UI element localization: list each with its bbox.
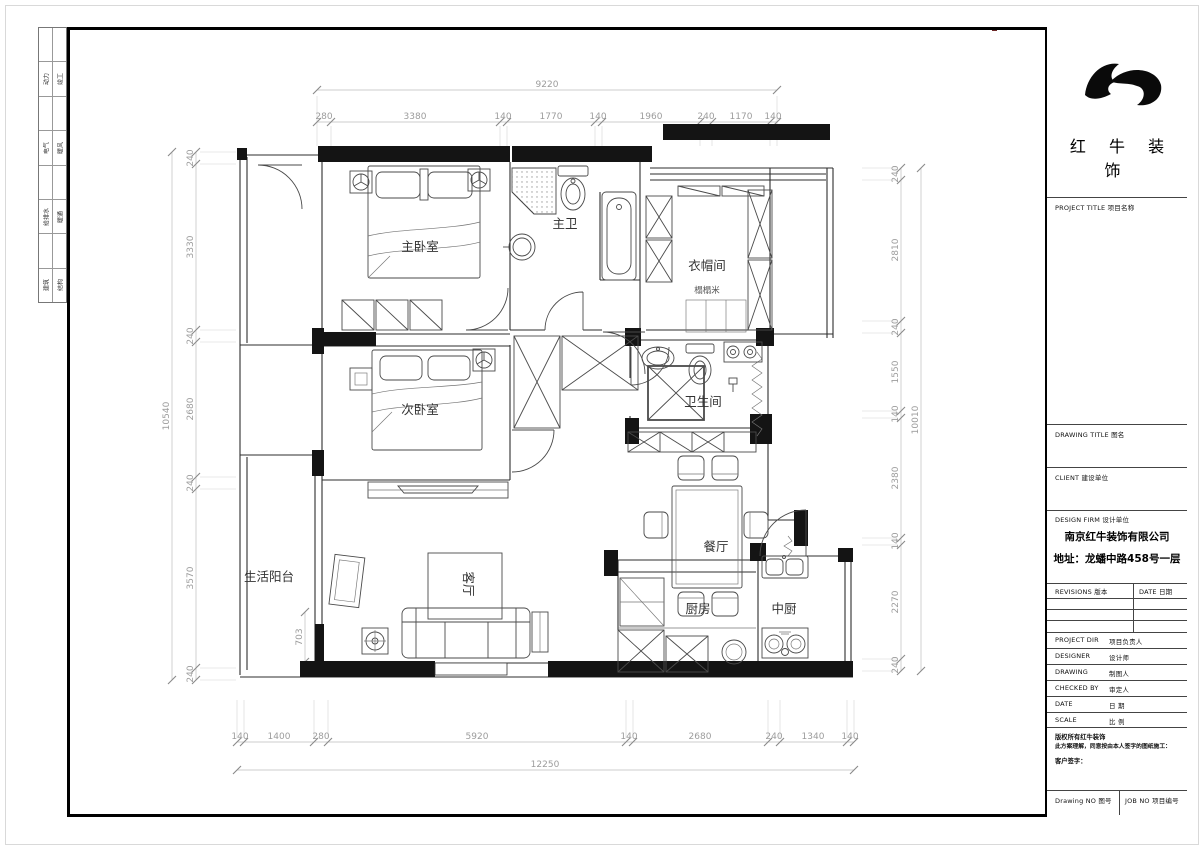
copyright-line2: 此方案理解，同意按由本人签字的图纸施工：: [1055, 741, 1171, 750]
dining-furniture: [644, 456, 768, 616]
client-label: CLIENT 建设单位: [1055, 472, 1108, 482]
room-label-bathroom: 卫生间: [684, 394, 722, 409]
room-label-cloakroom: 衣帽间: [688, 258, 726, 273]
drawing-sheet: 动力 竣工 电气 暖风 给排水 暖通 建筑 结构 红 牛 装 饰 PROJECT…: [0, 0, 1200, 848]
sign-label: 竣工: [55, 73, 64, 85]
title-block: 红 牛 装 饰 PROJECT TITLE 项目名称 DRAWING TITLE…: [1045, 27, 1187, 817]
dim-right-total: 10010: [911, 405, 921, 434]
sign-label: 动力: [41, 73, 50, 85]
svg-text:3570: 3570: [186, 566, 196, 589]
svg-text:2680: 2680: [186, 397, 196, 420]
sign-label: 建筑: [41, 279, 50, 291]
client-sign-label: 客户签字：: [1055, 756, 1086, 765]
dimension-left: 10540 240 3330 240 2680 240 3570 240: [162, 148, 236, 684]
svg-text:1960: 1960: [640, 112, 663, 122]
scale-label: SCALE: [1055, 716, 1077, 724]
svg-text:3380: 3380: [404, 112, 427, 122]
firm-address: 地址：龙蟠中路458号一层: [1047, 551, 1187, 566]
svg-text:240: 240: [186, 665, 196, 682]
sign-row-empty: [39, 28, 66, 62]
project-dir-label: PROJECT DIR: [1055, 636, 1099, 644]
dim-left-total: 10540: [162, 401, 172, 430]
dimension-right: 240 2810 240 1550 140 2380 140 2270 240 …: [862, 164, 925, 675]
svg-text:240: 240: [186, 149, 196, 166]
dimension-bottom: 140 1400 280 5920 140 2680 240 1340 140 …: [231, 608, 858, 774]
svg-text:2380: 2380: [891, 466, 901, 489]
revisions-label: REVISIONS 版本: [1055, 586, 1108, 596]
svg-text:140: 140: [891, 532, 901, 549]
sign-row-empty: [39, 97, 66, 131]
revisions-date-label: DATE 日期: [1139, 586, 1172, 596]
svg-text:2270: 2270: [891, 590, 901, 613]
svg-text:5920: 5920: [466, 732, 489, 742]
firm-name: 南京红牛装饰有限公司: [1047, 529, 1187, 544]
sign-row: 给排水 暖通: [39, 200, 66, 234]
entry-threshold: [435, 663, 507, 675]
signature-strip: 动力 竣工 电气 暖风 给排水 暖通 建筑 结构: [38, 27, 67, 303]
svg-text:1170: 1170: [730, 112, 753, 122]
room-label-tatami: 榻榻米: [694, 285, 720, 296]
svg-text:1340: 1340: [802, 732, 825, 742]
room-label-balcony: 生活阳台: [244, 569, 294, 584]
checked-by-label: CHECKED BY: [1055, 684, 1099, 692]
sign-label: 暖通: [55, 211, 64, 223]
svg-text:140: 140: [841, 732, 858, 742]
svg-text:240: 240: [697, 112, 714, 122]
frame-marker: [992, 30, 997, 31]
design-firm-label: DESIGN FIRM 设计单位: [1055, 514, 1129, 524]
svg-text:240: 240: [186, 474, 196, 491]
svg-text:280: 280: [312, 732, 329, 742]
second-bedroom-furniture: [350, 350, 508, 498]
floor-plan: 9220 280 3380 140 1770 140 1960 240 1170…: [70, 30, 1045, 820]
sign-label: 暖风: [55, 142, 64, 154]
room-label-living: 客厅: [461, 571, 476, 596]
sign-label: 给排水: [41, 208, 50, 226]
sign-row: 动力 竣工: [39, 62, 66, 96]
svg-text:240: 240: [891, 165, 901, 182]
room-label-kitchen: 厨房: [685, 601, 710, 616]
designer-label: DESIGNER: [1055, 652, 1090, 660]
svg-text:2810: 2810: [891, 238, 901, 261]
sign-label: 结构: [55, 279, 64, 291]
room-label-master-bedroom: 主卧室: [401, 239, 439, 254]
svg-text:240: 240: [186, 327, 196, 344]
sign-row: 建筑 结构: [39, 269, 66, 302]
svg-text:240: 240: [765, 732, 782, 742]
svg-text:240: 240: [891, 656, 901, 673]
svg-text:1400: 1400: [268, 732, 291, 742]
dim-bottom-total: 12250: [531, 760, 560, 770]
sign-label: 电气: [41, 142, 50, 154]
svg-text:280: 280: [315, 112, 332, 122]
svg-text:2680: 2680: [689, 732, 712, 742]
company-name: 红 牛 装 饰: [1047, 133, 1187, 181]
room-label-master-bath: 主卫: [552, 216, 577, 231]
svg-text:140: 140: [231, 732, 248, 742]
svg-text:3330: 3330: [186, 235, 196, 258]
living-room-furniture: [329, 553, 548, 658]
svg-text:1550: 1550: [891, 360, 901, 383]
sign-row-empty: [39, 234, 66, 268]
room-label-second-bedroom: 次卧室: [401, 402, 439, 417]
svg-text:140: 140: [891, 405, 901, 422]
svg-text:140: 140: [620, 732, 637, 742]
copyright-line1: 版权所有红牛装饰: [1055, 732, 1105, 741]
svg-text:140: 140: [494, 112, 511, 122]
sign-row: 电气 暖风: [39, 131, 66, 165]
project-title-label: PROJECT TITLE 项目名称: [1055, 202, 1134, 212]
sign-row-empty: [39, 166, 66, 200]
hall-closets: [514, 336, 704, 428]
svg-text:140: 140: [589, 112, 606, 122]
svg-text:1770: 1770: [540, 112, 563, 122]
dim-top-total: 9220: [536, 80, 559, 90]
drawing-title-label: DRAWING TITLE 图名: [1055, 429, 1125, 439]
room-label-chinese-kitchen: 中厨: [771, 601, 796, 616]
svg-text:140: 140: [764, 112, 781, 122]
job-no-label: JOB NO 项目编号: [1125, 795, 1179, 805]
drawing-no-label: Drawing NO 图号: [1055, 795, 1112, 805]
room-label-dining: 餐厅: [703, 539, 728, 554]
company-logo-bull-icon: [1071, 55, 1167, 121]
date-label: DATE: [1055, 700, 1073, 708]
svg-text:240: 240: [891, 318, 901, 335]
dim-703: 703: [295, 628, 305, 645]
drawing-label: DRAWING: [1055, 668, 1088, 676]
